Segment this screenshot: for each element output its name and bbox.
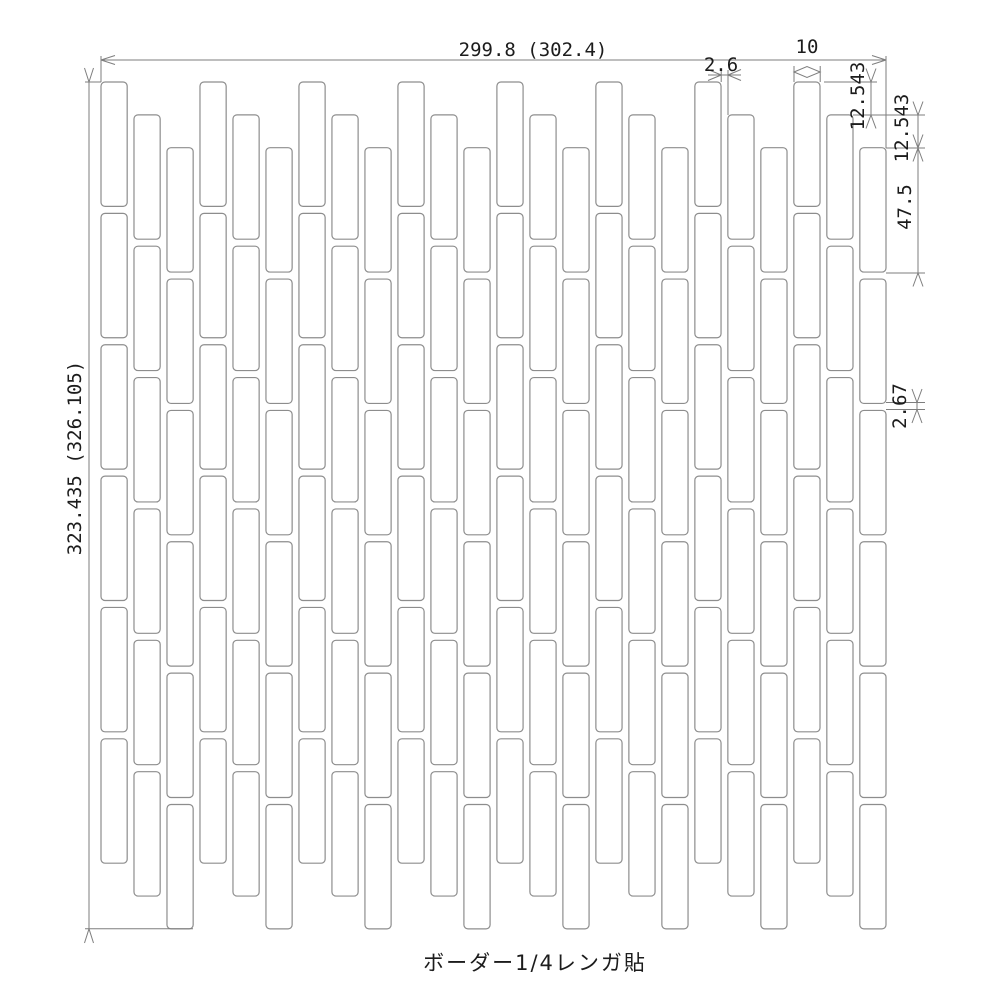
tile: [332, 640, 358, 764]
tile: [629, 772, 655, 896]
tile: [563, 673, 589, 797]
tile: [761, 410, 787, 534]
tile: [200, 213, 226, 337]
dim-step-offset-1-label: 12.543: [847, 62, 869, 131]
tile: [497, 476, 523, 600]
tile: [398, 82, 424, 206]
tile: [695, 739, 721, 863]
dim-joint-height-label: 2.67: [889, 383, 911, 429]
tile: [563, 805, 589, 929]
tile: [167, 542, 193, 666]
tile: [563, 148, 589, 272]
dim-joint-width-label: 2.6: [704, 54, 738, 76]
tile: [563, 542, 589, 666]
tile: [860, 542, 886, 666]
tile: [860, 673, 886, 797]
dim-step-offset-2: 12.543: [886, 94, 925, 163]
tile: [530, 772, 556, 896]
tile: [167, 148, 193, 272]
tile: [662, 673, 688, 797]
tile: [266, 410, 292, 534]
tile: [365, 805, 391, 929]
tile: [761, 542, 787, 666]
tile: [563, 279, 589, 403]
tile: [365, 148, 391, 272]
tile: [332, 509, 358, 633]
tile: [299, 476, 325, 600]
tile: [530, 509, 556, 633]
tile: [827, 246, 853, 370]
tile: [200, 607, 226, 731]
dim-tile-height-label: 47.5: [894, 184, 916, 230]
tile: [299, 213, 325, 337]
tile: [761, 148, 787, 272]
tile: [365, 410, 391, 534]
tile: [497, 213, 523, 337]
tile: [728, 509, 754, 633]
tile: [827, 509, 853, 633]
tile: [596, 739, 622, 863]
dim-overall-width-label: 299.8 (302.4): [459, 39, 608, 61]
tile: [530, 246, 556, 370]
tile: [101, 345, 127, 469]
tile: [101, 213, 127, 337]
tile: [728, 772, 754, 896]
tile: [167, 410, 193, 534]
tile: [629, 509, 655, 633]
tile: [464, 410, 490, 534]
tile: [629, 378, 655, 502]
tile: [728, 378, 754, 502]
tile: [629, 640, 655, 764]
tile: [596, 82, 622, 206]
dim-tile-width-lines: [794, 66, 820, 82]
tile: [431, 378, 457, 502]
tile: [563, 410, 589, 534]
tile: [464, 279, 490, 403]
tile: [728, 115, 754, 239]
tile: [728, 246, 754, 370]
drawing-canvas: 299.8 (302.4) 323.435 (326.105) 2.6 10 1…: [0, 0, 1000, 1000]
dim-tile-width: 10: [794, 36, 820, 82]
tile: [629, 115, 655, 239]
tile: [497, 82, 523, 206]
tile: [860, 279, 886, 403]
tile: [233, 509, 259, 633]
tile: [134, 772, 160, 896]
tile: [398, 739, 424, 863]
tile: [827, 378, 853, 502]
tile: [200, 739, 226, 863]
tile: [134, 115, 160, 239]
tile: [794, 82, 820, 206]
tile: [596, 607, 622, 731]
tile: [134, 378, 160, 502]
tile: [266, 279, 292, 403]
tile: [398, 345, 424, 469]
tile: [431, 772, 457, 896]
tile: [200, 476, 226, 600]
tile: [695, 345, 721, 469]
tile: [299, 607, 325, 731]
tile: [431, 246, 457, 370]
tile: [332, 772, 358, 896]
tile: [827, 772, 853, 896]
tile: [134, 509, 160, 633]
tile: [299, 82, 325, 206]
tile: [596, 213, 622, 337]
tile: [365, 542, 391, 666]
tile: [728, 640, 754, 764]
tile: [794, 607, 820, 731]
tile: [233, 772, 259, 896]
tile: [266, 805, 292, 929]
tile: [794, 213, 820, 337]
tile: [101, 82, 127, 206]
tile: [596, 476, 622, 600]
tile: [662, 279, 688, 403]
tile: [200, 345, 226, 469]
tile: [530, 640, 556, 764]
tile: [695, 213, 721, 337]
tile-layout-drawing: 299.8 (302.4) 323.435 (326.105) 2.6 10 1…: [0, 0, 1000, 1000]
tile: [464, 542, 490, 666]
tile: [761, 279, 787, 403]
tile: [827, 115, 853, 239]
tile: [662, 410, 688, 534]
tile: [233, 246, 259, 370]
tile: [530, 378, 556, 502]
tile: [596, 345, 622, 469]
tile: [233, 378, 259, 502]
tile: [299, 345, 325, 469]
tile: [365, 279, 391, 403]
tile: [761, 673, 787, 797]
dim-overall-height-label: 323.435 (326.105): [64, 361, 86, 555]
tile: [794, 476, 820, 600]
tile: [860, 805, 886, 929]
tile: [860, 410, 886, 534]
tile: [497, 345, 523, 469]
tile-grid: [101, 82, 886, 929]
tile: [662, 148, 688, 272]
tile: [167, 673, 193, 797]
tile: [266, 148, 292, 272]
dim-step-offset-2-label: 12.543: [891, 94, 913, 163]
dim-tile-width-label: 10: [796, 36, 819, 58]
dim-joint-height: 2.67: [886, 383, 925, 429]
tile: [200, 82, 226, 206]
tile: [794, 739, 820, 863]
tile: [497, 739, 523, 863]
tile: [332, 115, 358, 239]
tile: [266, 542, 292, 666]
tile: [167, 279, 193, 403]
tile: [629, 246, 655, 370]
tile: [134, 246, 160, 370]
caption: ボーダー1/4レンガ貼: [423, 951, 647, 975]
tile: [695, 607, 721, 731]
tile: [233, 115, 259, 239]
tile: [299, 739, 325, 863]
tile: [101, 607, 127, 731]
tile: [464, 805, 490, 929]
tile: [365, 673, 391, 797]
tile: [332, 246, 358, 370]
tile: [662, 542, 688, 666]
tile: [695, 476, 721, 600]
tile: [464, 673, 490, 797]
tile: [398, 607, 424, 731]
dim-tile-height: 47.5: [886, 148, 925, 287]
tile: [761, 805, 787, 929]
tile: [662, 805, 688, 929]
tile: [464, 148, 490, 272]
tile: [332, 378, 358, 502]
tile: [266, 673, 292, 797]
tile: [101, 739, 127, 863]
tile: [431, 115, 457, 239]
tile: [431, 640, 457, 764]
tile: [530, 115, 556, 239]
tile: [398, 213, 424, 337]
tile: [860, 148, 886, 272]
tile: [794, 345, 820, 469]
tile: [101, 476, 127, 600]
tile: [827, 640, 853, 764]
tile: [134, 640, 160, 764]
tile: [167, 805, 193, 929]
tile: [695, 82, 721, 206]
tile: [497, 607, 523, 731]
tile: [431, 509, 457, 633]
tile: [398, 476, 424, 600]
tile: [233, 640, 259, 764]
